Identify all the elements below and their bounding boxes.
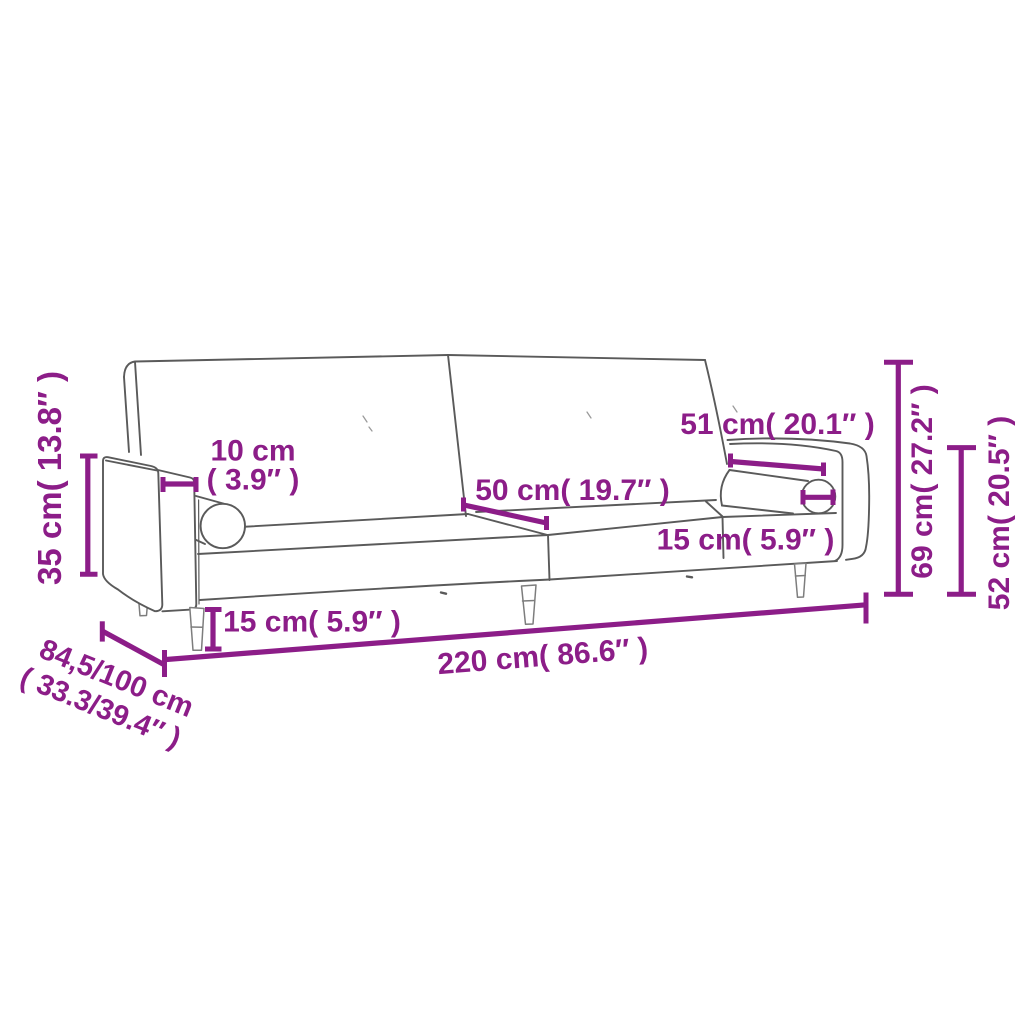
svg-text:35 cm( 13.8″ ): 35 cm( 13.8″ ) bbox=[31, 371, 68, 585]
svg-text:15 cm( 5.9″ ): 15 cm( 5.9″ ) bbox=[657, 524, 835, 557]
svg-text:69 cm( 27.2″ ): 69 cm( 27.2″ ) bbox=[906, 384, 939, 578]
svg-text:51 cm( 20.1″ ): 51 cm( 20.1″ ) bbox=[680, 408, 874, 441]
svg-text:15 cm( 5.9″ ): 15 cm( 5.9″ ) bbox=[223, 606, 401, 639]
svg-text:50 cm( 19.7″ ): 50 cm( 19.7″ ) bbox=[475, 474, 669, 507]
svg-text:220 cm( 86.6″ ): 220 cm( 86.6″ ) bbox=[436, 632, 649, 681]
svg-text:( 3.9″ ): ( 3.9″ ) bbox=[207, 464, 300, 497]
svg-text:52 cm( 20.5″ ): 52 cm( 20.5″ ) bbox=[983, 416, 1016, 610]
